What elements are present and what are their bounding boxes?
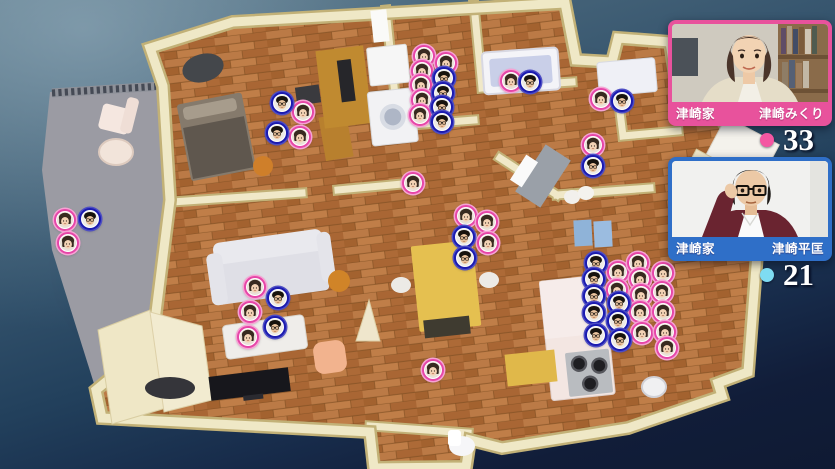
hiramasa-photo (672, 161, 828, 237)
person-marker-mikuri (409, 104, 431, 126)
mikuri-count-row: 33 (668, 127, 832, 153)
person-marker-hiramasa (585, 324, 607, 346)
person-label: 津崎平匡 (772, 238, 824, 257)
pink-count-dot (760, 133, 774, 147)
person-marker-mikuri (422, 359, 444, 381)
person-marker-mikuri (289, 126, 311, 148)
person-marker-hiramasa (453, 226, 475, 248)
person-marker-mikuri (244, 276, 266, 298)
mikuri-count: 33 (783, 127, 814, 153)
hiramasa-label-bar: 津崎家 津崎平匡 (672, 237, 828, 257)
person-marker-mikuri (292, 101, 314, 123)
person-marker-hiramasa (267, 287, 289, 309)
person-label: 津崎みくり (759, 103, 824, 122)
person-marker-mikuri (652, 301, 674, 323)
person-marker-hiramasa (264, 316, 286, 338)
person-marker-hiramasa (79, 208, 101, 230)
person-marker-hiramasa (611, 90, 633, 112)
person-marker-mikuri (590, 88, 612, 110)
scoreboard-mikuri: 津崎家 津崎みくり 33 (668, 20, 832, 153)
mikuri-card: 津崎家 津崎みくり (668, 20, 832, 126)
hiramasa-count-row: 21 (668, 262, 832, 288)
person-marker-mikuri (57, 232, 79, 254)
person-marker-mikuri (455, 205, 477, 227)
mikuri-label-bar: 津崎家 津崎みくり (672, 102, 828, 122)
person-marker-hiramasa (431, 111, 453, 133)
person-marker-mikuri (477, 232, 499, 254)
person-marker-mikuri (54, 209, 76, 231)
person-marker-mikuri (476, 211, 498, 233)
person-marker-mikuri (402, 172, 424, 194)
mikuri-photo (672, 24, 828, 102)
person-marker-hiramasa (582, 155, 604, 177)
scoreboard-hiramasa: 津崎家 津崎平匡 21 (668, 157, 832, 288)
family-label: 津崎家 (676, 238, 715, 257)
person-marker-hiramasa (271, 92, 293, 114)
person-marker-hiramasa (609, 329, 631, 351)
broadcast-frame: 津崎家 津崎みくり 33 (0, 0, 835, 469)
person-marker-hiramasa (519, 71, 541, 93)
person-marker-mikuri (237, 326, 259, 348)
person-marker-hiramasa (583, 302, 605, 324)
person-marker-mikuri (582, 134, 604, 156)
family-label: 津崎家 (676, 103, 715, 122)
blue-count-dot (760, 268, 774, 282)
person-marker-hiramasa (266, 122, 288, 144)
person-marker-mikuri (629, 301, 651, 323)
hiramasa-count: 21 (783, 262, 814, 288)
person-marker-mikuri (656, 337, 678, 359)
person-marker-hiramasa (454, 247, 476, 269)
hiramasa-card: 津崎家 津崎平匡 (668, 157, 832, 261)
person-marker-mikuri (239, 301, 261, 323)
person-marker-mikuri (631, 322, 653, 344)
